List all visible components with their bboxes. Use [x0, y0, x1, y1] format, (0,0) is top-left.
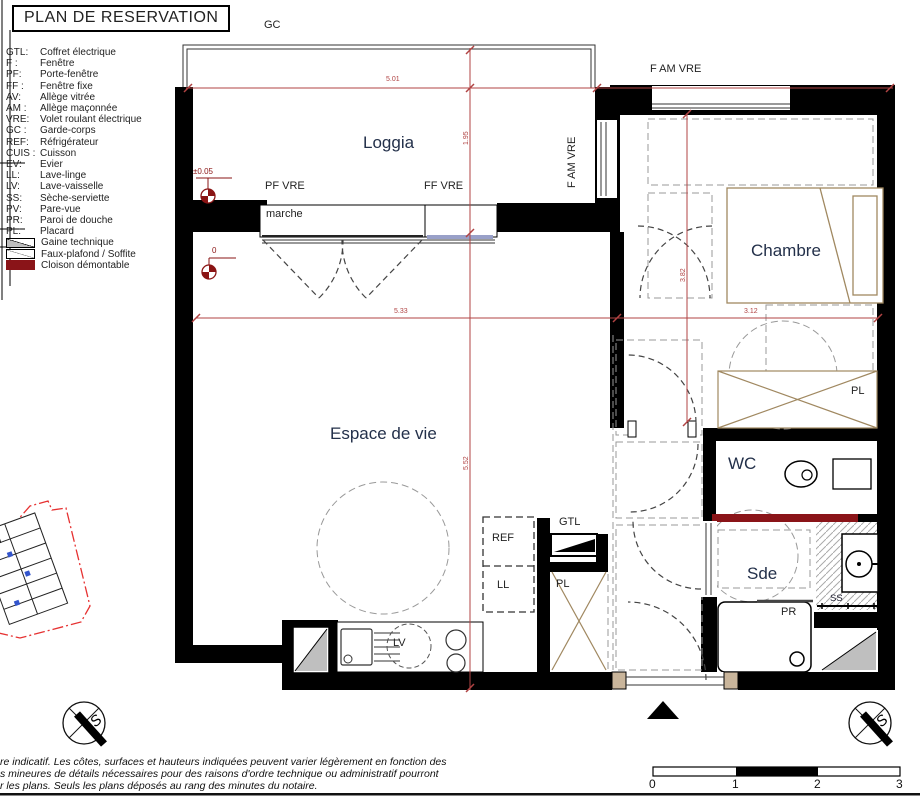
dim-living-height: 5.52	[463, 456, 470, 470]
legend-item: PL:Placard	[6, 226, 142, 237]
label-f-am-vre-top: F AM VRE	[650, 63, 701, 75]
room-label-sde: Sde	[747, 564, 777, 584]
entrance-arrow	[647, 701, 679, 719]
level-interior: 0	[212, 246, 216, 255]
cloison-demontable	[712, 514, 858, 522]
label-gtl: GTL	[559, 516, 580, 528]
legend-swatch-cloison: Cloison démontable	[6, 260, 142, 271]
disclaimer-line: s mineures de détails nécessaires pour d…	[0, 768, 460, 780]
label-ref: REF	[492, 532, 514, 544]
window-f-am-vre-left	[597, 120, 617, 198]
legend-item: AV:Allège vitrée	[6, 92, 142, 103]
label-placard-chambre: PL	[851, 385, 864, 397]
toilet	[785, 459, 871, 489]
scale-tick-1: 1	[732, 777, 739, 791]
legend-item: LV:Lave-vaisselle	[6, 181, 142, 192]
site-key-plan	[0, 501, 90, 638]
level-benchmark-interior	[202, 258, 236, 279]
disclaimer-line: r les plans. Seuls les plans déposés au …	[0, 780, 460, 792]
faux-plafond-swatch-icon	[6, 249, 35, 259]
room-label-wc: WC	[728, 454, 756, 474]
kitchen-counter	[337, 622, 483, 672]
scale-tick-2: 2	[814, 777, 821, 791]
room-label-espace-de-vie: Espace de vie	[330, 424, 437, 444]
shower	[718, 601, 813, 672]
label-ll: LL	[497, 579, 509, 591]
dim-chambre-height: 3.82	[680, 268, 687, 282]
legend-item: AM :Allège maçonnée	[6, 103, 142, 114]
level-loggia: ±0.05	[193, 167, 213, 176]
scale-tick-0: 0	[649, 777, 656, 791]
legend-item: GC :Garde-corps	[6, 125, 142, 136]
page-title: PLAN DE RESERVATION	[12, 5, 230, 32]
disclaimer-line: re indicatif. Les côtes, surfaces et hau…	[0, 756, 460, 768]
compass-left: S	[63, 702, 105, 744]
sink	[341, 629, 372, 665]
level-benchmark-loggia	[196, 178, 232, 203]
scale-tick-3: 3	[896, 777, 903, 791]
label-ff-vre: FF VRE	[424, 180, 463, 192]
footer-disclaimer: re indicatif. Les côtes, surfaces et hau…	[0, 756, 460, 792]
burner	[447, 654, 465, 672]
label-ss: SS	[830, 593, 843, 604]
gaine-hatch-sde	[816, 522, 882, 610]
placard-chambre	[718, 371, 877, 428]
footer-rule	[0, 793, 920, 796]
legend-item: REF:Réfrigérateur	[6, 137, 142, 148]
legend-item: PF:Porte-fenêtre	[6, 69, 142, 80]
legend-item: F :Fenêtre	[6, 58, 142, 69]
gaine-technique-kitchen	[293, 627, 329, 673]
label-pf-vre: PF VRE	[265, 180, 305, 192]
burner	[446, 630, 466, 650]
cloison-swatch-icon	[6, 260, 35, 270]
dim-chambre-width: 3.12	[744, 308, 758, 315]
legend-swatch-gaine: Gaine technique	[6, 237, 142, 248]
label-lv: LV	[393, 637, 406, 649]
room-label-chambre: Chambre	[751, 241, 821, 261]
legend-swatch-faux-plafond: Faux-plafond / Soffite	[6, 249, 142, 260]
compass-right: S	[849, 702, 891, 744]
window-f-am-vre-top	[652, 86, 790, 110]
legend-item: CUIS :Cuisson	[6, 148, 142, 159]
gtl-box	[551, 534, 597, 556]
legend-item: VRE:Volet roulant électrique	[6, 114, 142, 125]
gaine-technique-sde	[820, 630, 878, 672]
label-marche: marche	[266, 208, 303, 220]
dim-loggia-depth: 1.95	[463, 131, 470, 145]
legend-item: FF :Fenêtre fixe	[6, 81, 142, 92]
legend-item: PV:Pare-vue	[6, 204, 142, 215]
legend-item: GTL:Coffret électrique	[6, 47, 142, 58]
plan-sheet: S S PLAN DE RESERVATION GTL:Coffret élec…	[0, 0, 920, 800]
legend-item: LL:Lave-linge	[6, 170, 142, 181]
label-placard-entree: PL	[556, 578, 569, 590]
legend-item: SS:Sèche-serviette	[6, 193, 142, 204]
label-garde-corps: GC	[264, 19, 281, 31]
label-pr: PR	[781, 606, 796, 618]
scale-bar	[653, 767, 900, 776]
legend-item: EV:Evier	[6, 159, 142, 170]
dim-living-width: 5.33	[394, 308, 408, 315]
legend-item: PR:Paroi de douche	[6, 215, 142, 226]
dim-top-width: 5.01	[386, 76, 400, 83]
legend: GTL:Coffret électrique F :Fenêtre PF:Por…	[6, 47, 142, 271]
room-label-loggia: Loggia	[363, 133, 414, 153]
gaine-swatch-icon	[6, 238, 35, 248]
label-f-am-vre-left: F AM VRE	[566, 137, 578, 188]
